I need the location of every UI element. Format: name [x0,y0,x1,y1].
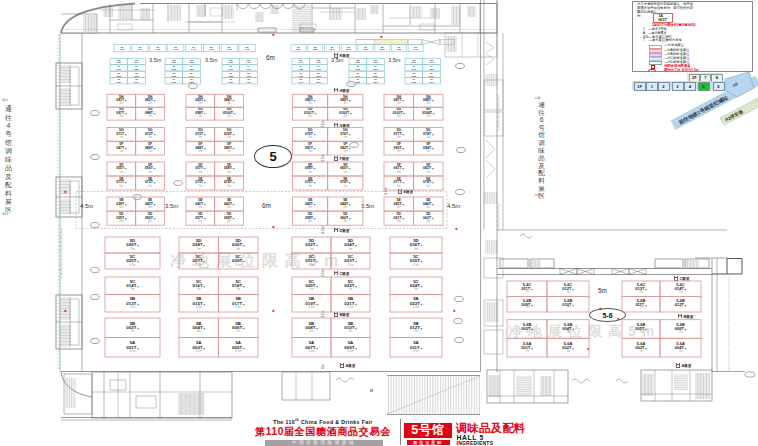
svg-text:前往地铁1号线世纪城站: 前往地铁1号线世纪城站 [677,94,730,127]
